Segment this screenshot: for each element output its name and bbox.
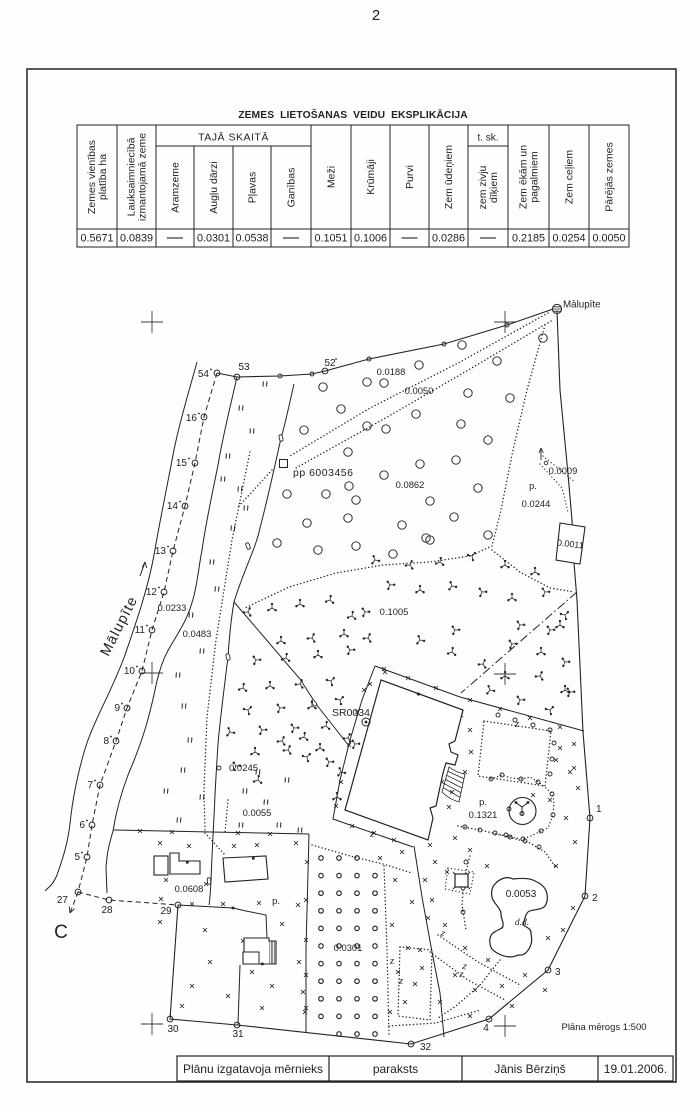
svg-text:Zem ūdeņiem: Zem ūdeņiem: [443, 145, 455, 209]
svg-text:Ganības: Ganības: [285, 168, 297, 208]
svg-text:z: z: [389, 956, 394, 967]
svg-text:30: 30: [167, 1024, 179, 1035]
svg-text:SR0034: SR0034: [332, 707, 370, 719]
svg-text:2: 2: [592, 893, 598, 904]
svg-text:9: 9: [114, 703, 120, 714]
svg-text:0.1005: 0.1005: [380, 606, 409, 617]
svg-text:Mālupīte: Mālupīte: [563, 300, 601, 311]
svg-text:0.1006: 0.1006: [354, 233, 387, 245]
svg-text:13: 13: [155, 546, 167, 557]
svg-text:11: 11: [135, 625, 146, 636]
svg-text:0.2185: 0.2185: [512, 233, 545, 245]
svg-text:6: 6: [79, 820, 85, 831]
svg-text:8: 8: [103, 736, 109, 747]
svg-text:Aramzeme: Aramzeme: [169, 162, 181, 213]
svg-text:pagalmiem: pagalmiem: [528, 151, 540, 203]
svg-text:29: 29: [160, 906, 172, 917]
svg-text:z: z: [369, 829, 374, 840]
svg-text:platība ha: platība ha: [97, 154, 109, 200]
svg-text:0.1321: 0.1321: [469, 809, 498, 820]
svg-text:53: 53: [238, 362, 250, 373]
svg-text:0.0244: 0.0244: [522, 498, 551, 509]
svg-text:14: 14: [167, 501, 179, 512]
svg-text:0.0538: 0.0538: [235, 233, 268, 245]
svg-text:0.0050: 0.0050: [592, 233, 625, 245]
svg-text:0.1051: 0.1051: [314, 233, 347, 245]
svg-text:Augļu dārzi: Augļu dārzi: [208, 161, 220, 214]
svg-text:7: 7: [87, 780, 93, 791]
svg-text:0.0483: 0.0483: [183, 628, 212, 639]
svg-text:TAJĀ SKAITĀ: TAJĀ SKAITĀ: [198, 132, 269, 144]
svg-text:0.0053: 0.0053: [506, 889, 537, 900]
svg-text:Pļavas: Pļavas: [246, 172, 258, 204]
svg-text:p.: p.: [479, 796, 487, 807]
svg-text:p.: p.: [529, 480, 537, 491]
svg-text:p.: p.: [272, 895, 280, 906]
svg-text:31: 31: [232, 1029, 244, 1040]
svg-text:15: 15: [176, 458, 188, 469]
svg-text:52: 52: [324, 358, 336, 369]
svg-text:z: z: [398, 976, 403, 987]
svg-text:Jānis Bērziņš: Jānis Bērziņš: [494, 1062, 565, 1076]
svg-text:pp 6003456: pp 6003456: [293, 467, 353, 479]
svg-text:5: 5: [74, 852, 80, 863]
svg-text:Meži: Meži: [325, 166, 337, 188]
svg-text:0.5671: 0.5671: [80, 233, 113, 245]
svg-text:dīķiem: dīķiem: [488, 172, 500, 203]
svg-text:12: 12: [146, 587, 158, 598]
svg-text:0.0862: 0.0862: [396, 479, 425, 490]
svg-text:Purvi: Purvi: [404, 165, 416, 189]
svg-text:ZEMES LIETOŠANAS VEIDU EKSP: ZEMES LIETOŠANAS VEIDU EKSPLIKĀCIJA: [238, 108, 468, 121]
svg-text:16: 16: [186, 413, 198, 424]
svg-text:0.0286: 0.0286: [432, 233, 465, 245]
svg-text:C: C: [54, 922, 68, 943]
svg-text:0.0301: 0.0301: [334, 942, 363, 953]
svg-text:0.0050: 0.0050: [405, 385, 434, 396]
svg-text:Pārējās zemes: Pārējās zemes: [603, 142, 615, 211]
svg-text:t. sk.: t. sk.: [477, 133, 498, 144]
svg-text:19.01.2006.: 19.01.2006.: [604, 1062, 667, 1076]
svg-text:0.0608: 0.0608: [175, 883, 204, 894]
svg-text:3: 3: [555, 967, 561, 978]
svg-text:27: 27: [57, 895, 69, 906]
svg-text:0.0254: 0.0254: [552, 233, 585, 245]
svg-text:d.d.: d.d.: [515, 918, 529, 928]
svg-text:2: 2: [372, 7, 380, 24]
svg-text:32: 32: [420, 1042, 432, 1053]
svg-text:0.0839: 0.0839: [120, 233, 153, 245]
svg-text:0.0233: 0.0233: [158, 602, 187, 613]
svg-text:54: 54: [198, 369, 210, 380]
svg-text:z: z: [514, 719, 519, 730]
svg-text:0.0301: 0.0301: [197, 233, 230, 245]
svg-text:28: 28: [101, 905, 113, 916]
svg-text:1: 1: [596, 804, 602, 815]
svg-text:0.0055: 0.0055: [243, 807, 272, 818]
svg-text:izmantojamā zeme: izmantojamā zeme: [136, 133, 148, 221]
svg-text:paraksts: paraksts: [373, 1062, 418, 1076]
svg-text:4: 4: [483, 1023, 489, 1034]
svg-text:Plānu izgatavoja mērnieks: Plānu izgatavoja mērnieks: [183, 1062, 323, 1076]
svg-text:0.0188: 0.0188: [377, 366, 406, 377]
svg-text:Krūmāji: Krūmāji: [365, 159, 377, 195]
svg-text:0.0009: 0.0009: [549, 465, 578, 476]
svg-text:10: 10: [124, 666, 136, 677]
svg-text:Zem ceļiem: Zem ceļiem: [563, 150, 575, 205]
svg-text:0.0245: 0.0245: [229, 763, 258, 774]
svg-text:Plāna mērogs 1:500: Plāna mērogs 1:500: [561, 1022, 646, 1033]
